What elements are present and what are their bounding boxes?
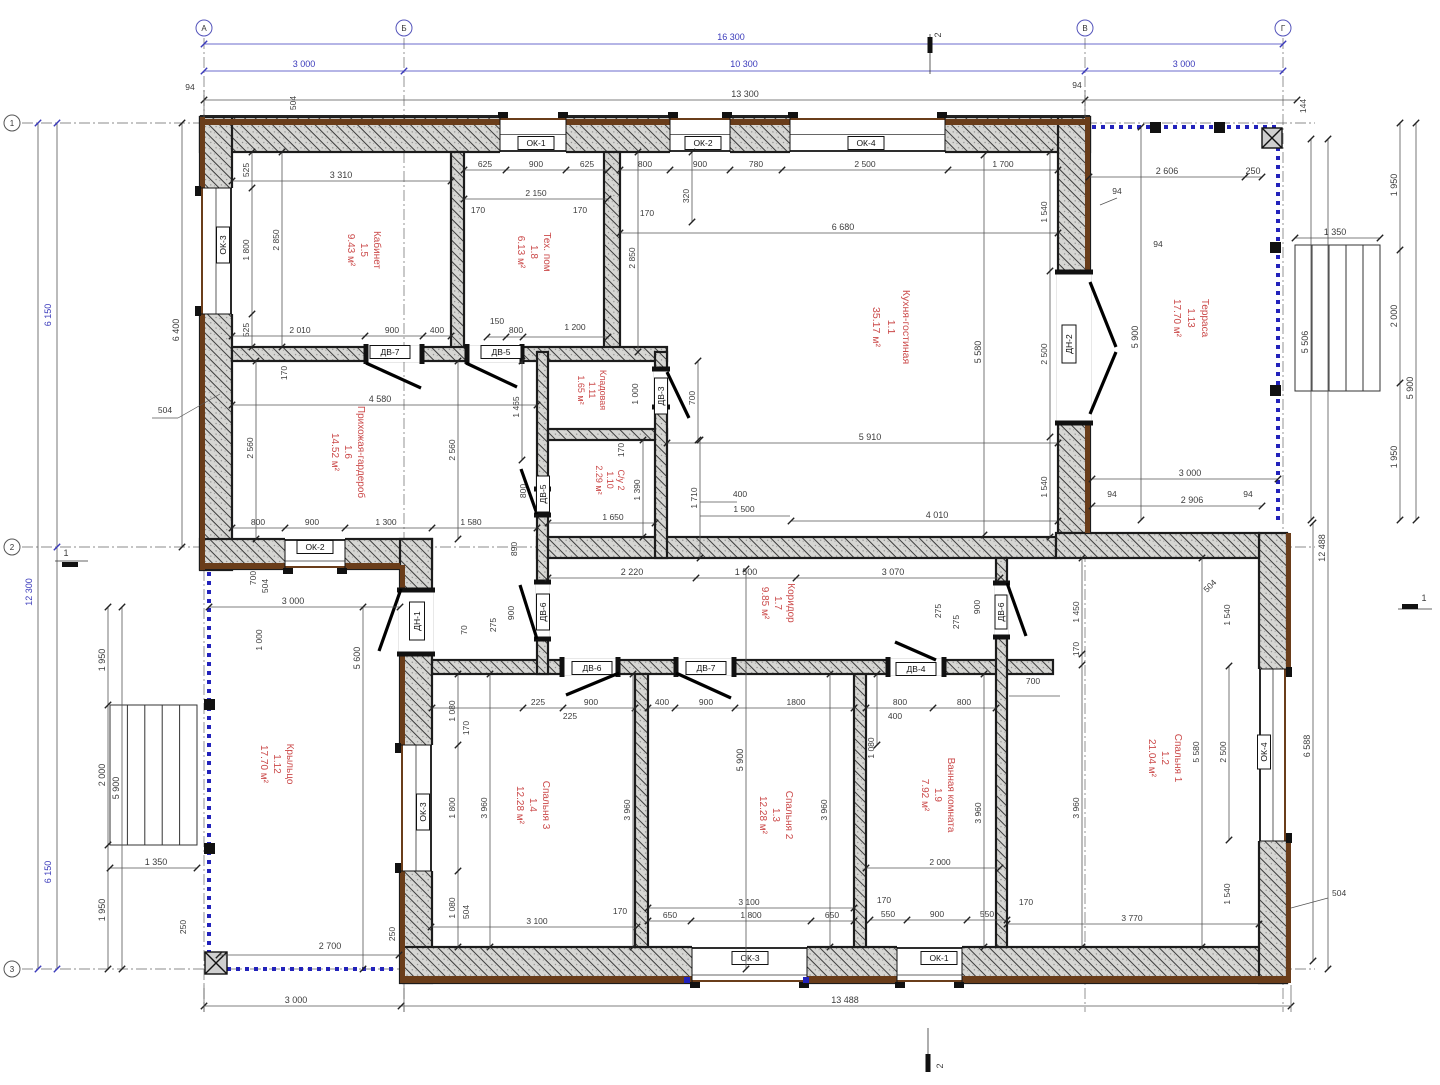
svg-text:1 950: 1 950 [97, 649, 107, 672]
svg-text:14.52 м²: 14.52 м² [329, 433, 340, 472]
svg-text:2 500: 2 500 [1039, 343, 1049, 365]
svg-text:2 000: 2 000 [1389, 305, 1399, 328]
svg-text:2: 2 [935, 1063, 945, 1068]
svg-text:3 000: 3 000 [293, 59, 316, 69]
svg-text:4 010: 4 010 [926, 510, 949, 520]
svg-text:5 900: 5 900 [111, 777, 121, 800]
svg-text:504: 504 [1332, 888, 1346, 898]
svg-text:2 850: 2 850 [627, 247, 637, 269]
svg-text:В: В [1082, 24, 1087, 33]
svg-text:700: 700 [248, 571, 258, 585]
svg-text:ОК-3: ОК-3 [218, 235, 228, 254]
svg-text:900: 900 [584, 697, 598, 707]
svg-text:3 960: 3 960 [819, 799, 829, 821]
svg-text:225: 225 [563, 711, 577, 721]
svg-text:А: А [201, 24, 207, 33]
svg-text:1 080: 1 080 [866, 737, 876, 759]
svg-text:3 770: 3 770 [1121, 913, 1143, 923]
svg-text:Тех. пом: Тех. пом [541, 232, 552, 271]
svg-text:3 000: 3 000 [285, 995, 308, 1005]
svg-text:700: 700 [1026, 676, 1040, 686]
svg-text:250: 250 [1245, 166, 1260, 176]
svg-text:1.6: 1.6 [342, 445, 353, 459]
svg-text:Коридор: Коридор [785, 583, 796, 623]
svg-text:3 960: 3 960 [622, 799, 632, 821]
svg-text:144: 144 [1298, 99, 1308, 113]
svg-text:650: 650 [663, 910, 677, 920]
svg-text:3 100: 3 100 [738, 897, 760, 907]
svg-text:400: 400 [733, 489, 747, 499]
svg-text:1: 1 [63, 548, 68, 558]
svg-text:150: 150 [490, 316, 504, 326]
svg-text:3 100: 3 100 [526, 916, 548, 926]
svg-text:6.13 м²: 6.13 м² [515, 236, 526, 269]
svg-text:2 000: 2 000 [97, 764, 107, 787]
svg-text:ОК-1: ОК-1 [526, 138, 545, 148]
svg-text:94: 94 [185, 82, 195, 92]
svg-text:5 600: 5 600 [352, 647, 362, 670]
svg-text:1 710: 1 710 [689, 487, 699, 509]
svg-text:Кабинет: Кабинет [371, 231, 383, 269]
svg-text:170: 170 [573, 205, 587, 215]
svg-text:ДВ-5: ДВ-5 [538, 484, 548, 503]
svg-text:225: 225 [531, 697, 545, 707]
svg-text:5 900: 5 900 [1405, 377, 1415, 400]
svg-text:94: 94 [1243, 489, 1253, 499]
svg-text:1 540: 1 540 [1222, 883, 1232, 905]
svg-text:ДН-1: ДН-1 [412, 611, 422, 631]
svg-text:Б: Б [401, 24, 406, 33]
svg-text:5 580: 5 580 [1191, 741, 1201, 763]
svg-text:2 560: 2 560 [447, 439, 457, 461]
svg-text:1 950: 1 950 [1389, 446, 1399, 469]
svg-text:1 540: 1 540 [1039, 201, 1049, 223]
svg-text:6 150: 6 150 [43, 861, 53, 884]
svg-text:250: 250 [387, 927, 397, 941]
svg-text:12.28 м²: 12.28 м² [514, 786, 525, 825]
svg-text:Прихожая-гардероб: Прихожая-гардероб [355, 406, 367, 499]
svg-text:94: 94 [1072, 80, 1082, 90]
svg-text:700: 700 [687, 391, 697, 405]
svg-text:900: 900 [529, 159, 543, 169]
svg-text:800: 800 [518, 484, 528, 498]
svg-text:Крыльцо: Крыльцо [284, 744, 295, 785]
svg-text:12.28 м²: 12.28 м² [757, 796, 768, 835]
svg-text:1 800: 1 800 [447, 797, 457, 819]
svg-text:170: 170 [877, 895, 891, 905]
svg-text:275: 275 [933, 604, 943, 618]
svg-text:170: 170 [1071, 642, 1081, 656]
svg-text:2 500: 2 500 [1218, 741, 1228, 763]
svg-text:1.65 м²: 1.65 м² [576, 375, 586, 404]
svg-text:Кладовая: Кладовая [598, 370, 608, 410]
svg-text:1.12: 1.12 [271, 754, 282, 774]
svg-text:2 906: 2 906 [1181, 495, 1204, 505]
svg-text:16 300: 16 300 [717, 32, 745, 42]
svg-text:5 910: 5 910 [859, 432, 882, 442]
svg-text:2.29 м²: 2.29 м² [594, 465, 604, 494]
svg-text:800: 800 [638, 159, 652, 169]
svg-text:1.2: 1.2 [1159, 751, 1170, 765]
svg-text:3 000: 3 000 [1179, 468, 1202, 478]
svg-text:3 960: 3 960 [1071, 797, 1081, 819]
svg-text:ДВ-6: ДВ-6 [996, 602, 1006, 621]
svg-text:275: 275 [951, 615, 961, 629]
svg-text:1 000: 1 000 [630, 383, 640, 405]
svg-text:1 800: 1 800 [740, 910, 762, 920]
svg-text:800: 800 [893, 697, 907, 707]
svg-text:800: 800 [251, 517, 265, 527]
svg-text:170: 170 [279, 366, 289, 380]
svg-text:Терраса: Терраса [1199, 299, 1210, 338]
svg-text:Спальня 3: Спальня 3 [540, 781, 551, 830]
svg-text:1.1: 1.1 [885, 320, 897, 335]
svg-text:1 500: 1 500 [733, 504, 755, 514]
svg-text:1 950: 1 950 [97, 899, 107, 922]
svg-text:6 150: 6 150 [43, 304, 53, 327]
svg-text:ОК-3: ОК-3 [740, 953, 759, 963]
svg-text:Спальня 1: Спальня 1 [1172, 734, 1183, 783]
svg-text:2: 2 [933, 32, 943, 37]
svg-text:1 465: 1 465 [511, 396, 521, 418]
svg-text:1 080: 1 080 [447, 700, 457, 722]
svg-text:625: 625 [478, 159, 492, 169]
svg-text:2 700: 2 700 [319, 941, 342, 951]
svg-text:2 560: 2 560 [245, 437, 255, 459]
svg-text:6 680: 6 680 [832, 222, 855, 232]
svg-text:21.04 м²: 21.04 м² [1146, 739, 1157, 778]
svg-text:ДВ-3: ДВ-3 [656, 386, 666, 405]
svg-text:3 310: 3 310 [330, 170, 353, 180]
svg-text:3 960: 3 960 [479, 797, 489, 819]
svg-text:504: 504 [288, 96, 298, 110]
svg-text:ОК-3: ОК-3 [418, 802, 428, 821]
svg-text:900: 900 [305, 517, 319, 527]
svg-text:6 588: 6 588 [1302, 735, 1312, 758]
svg-text:10 300: 10 300 [730, 59, 758, 69]
svg-text:250: 250 [178, 920, 188, 934]
svg-text:ОК-1: ОК-1 [929, 953, 948, 963]
svg-text:890: 890 [509, 542, 519, 556]
svg-text:900: 900 [972, 600, 982, 614]
svg-text:ДВ-7: ДВ-7 [697, 663, 716, 673]
svg-text:170: 170 [613, 906, 627, 916]
svg-text:2 500: 2 500 [854, 159, 876, 169]
svg-text:1 000: 1 000 [254, 629, 264, 651]
svg-text:1.4: 1.4 [527, 798, 538, 812]
svg-text:504: 504 [260, 579, 270, 593]
svg-text:550: 550 [980, 909, 994, 919]
svg-text:1 700: 1 700 [992, 159, 1014, 169]
svg-text:1 080: 1 080 [447, 897, 457, 919]
svg-text:504: 504 [461, 905, 471, 919]
svg-text:1.9: 1.9 [932, 788, 943, 802]
svg-text:1.13: 1.13 [1185, 308, 1196, 328]
svg-text:17.70 м²: 17.70 м² [1171, 299, 1182, 338]
svg-text:ДВ-7: ДВ-7 [381, 347, 400, 357]
svg-text:1 950: 1 950 [1389, 174, 1399, 197]
svg-text:1 200: 1 200 [564, 322, 586, 332]
svg-text:1.11: 1.11 [587, 382, 597, 399]
svg-text:1 300: 1 300 [375, 517, 397, 527]
svg-text:2 220: 2 220 [621, 567, 644, 577]
svg-text:800: 800 [957, 697, 971, 707]
svg-text:1.5: 1.5 [358, 243, 369, 257]
svg-text:275: 275 [488, 618, 498, 632]
svg-text:900: 900 [506, 606, 516, 620]
svg-text:Ванная комната: Ванная комната [945, 758, 956, 833]
svg-text:1: 1 [1421, 593, 1426, 603]
svg-text:400: 400 [655, 697, 669, 707]
svg-text:170: 170 [471, 205, 485, 215]
svg-text:12 488: 12 488 [1317, 534, 1327, 562]
svg-text:С/у 2: С/у 2 [616, 469, 626, 490]
svg-text:170: 170 [1019, 897, 1033, 907]
svg-text:ДВ-5: ДВ-5 [492, 347, 511, 357]
svg-text:1.8: 1.8 [528, 245, 539, 259]
svg-text:94: 94 [1107, 489, 1117, 499]
svg-text:70: 70 [459, 625, 469, 635]
svg-text:900: 900 [693, 159, 707, 169]
svg-text:900: 900 [385, 325, 399, 335]
svg-text:13 300: 13 300 [731, 89, 759, 99]
svg-text:6 400: 6 400 [171, 319, 181, 342]
svg-text:Г: Г [1281, 24, 1286, 33]
svg-text:3 000: 3 000 [1173, 59, 1196, 69]
svg-text:1 350: 1 350 [1324, 227, 1347, 237]
svg-text:35.17 м²: 35.17 м² [870, 307, 882, 347]
svg-text:170: 170 [616, 443, 626, 457]
svg-text:3 960: 3 960 [973, 802, 983, 824]
svg-text:ДВ-6: ДВ-6 [583, 663, 602, 673]
svg-text:525: 525 [241, 163, 251, 177]
svg-text:13 488: 13 488 [831, 995, 859, 1005]
svg-text:12 300: 12 300 [24, 578, 34, 606]
svg-text:780: 780 [749, 159, 763, 169]
svg-text:504: 504 [158, 405, 172, 415]
svg-text:1 540: 1 540 [1222, 604, 1232, 626]
svg-text:1 450: 1 450 [1071, 601, 1081, 623]
svg-text:320: 320 [681, 189, 691, 203]
svg-text:ОК-4: ОК-4 [1259, 742, 1269, 761]
svg-text:625: 625 [580, 159, 594, 169]
svg-text:170: 170 [461, 721, 471, 735]
svg-text:1 540: 1 540 [1039, 476, 1049, 498]
svg-text:1 580: 1 580 [460, 517, 482, 527]
svg-text:5 506: 5 506 [1300, 331, 1310, 354]
svg-text:ДВ-4: ДВ-4 [907, 664, 926, 674]
svg-text:2 606: 2 606 [1156, 166, 1179, 176]
svg-text:Кухня-гостиная: Кухня-гостиная [900, 290, 912, 364]
svg-text:800: 800 [509, 325, 523, 335]
svg-text:ДН-2: ДН-2 [1064, 334, 1074, 354]
svg-text:94: 94 [1112, 186, 1122, 196]
svg-text:1 350: 1 350 [145, 857, 168, 867]
svg-text:2 150: 2 150 [525, 188, 547, 198]
svg-text:650: 650 [825, 910, 839, 920]
svg-text:9.43 м²: 9.43 м² [345, 234, 356, 267]
svg-text:ДВ-6: ДВ-6 [538, 602, 548, 621]
svg-text:400: 400 [888, 711, 902, 721]
svg-text:5 900: 5 900 [1130, 326, 1140, 349]
svg-text:ОК-4: ОК-4 [856, 138, 875, 148]
svg-text:1 500: 1 500 [735, 567, 758, 577]
svg-text:2: 2 [10, 543, 15, 552]
svg-text:4 580: 4 580 [369, 394, 392, 404]
svg-text:9.85 м²: 9.85 м² [759, 587, 770, 620]
svg-text:1 650: 1 650 [602, 512, 624, 522]
svg-text:ОК-2: ОК-2 [305, 542, 324, 552]
svg-text:1.10: 1.10 [605, 471, 615, 489]
svg-text:Спальня 2: Спальня 2 [783, 791, 794, 840]
svg-text:3 070: 3 070 [882, 567, 905, 577]
svg-text:7.92 м²: 7.92 м² [919, 779, 930, 812]
svg-text:ОК-2: ОК-2 [693, 138, 712, 148]
svg-text:900: 900 [930, 909, 944, 919]
svg-text:2 850: 2 850 [271, 229, 281, 251]
svg-text:400: 400 [430, 325, 444, 335]
svg-text:1 390: 1 390 [632, 479, 642, 501]
svg-text:94: 94 [1153, 239, 1163, 249]
svg-text:1800: 1800 [787, 697, 806, 707]
svg-text:1: 1 [10, 119, 15, 128]
svg-text:1.7: 1.7 [772, 596, 783, 610]
svg-text:900: 900 [699, 697, 713, 707]
svg-text:1.3: 1.3 [770, 808, 781, 822]
svg-text:525: 525 [241, 323, 251, 337]
svg-text:3: 3 [10, 965, 15, 974]
svg-text:2 010: 2 010 [289, 325, 311, 335]
svg-text:1 800: 1 800 [241, 239, 251, 261]
svg-text:3 000: 3 000 [282, 596, 305, 606]
svg-text:5 580: 5 580 [973, 341, 983, 364]
svg-text:17.70 м²: 17.70 м² [258, 745, 269, 784]
svg-text:550: 550 [881, 909, 895, 919]
svg-text:2 000: 2 000 [929, 857, 951, 867]
svg-text:170: 170 [640, 208, 654, 218]
svg-text:5 900: 5 900 [735, 749, 745, 772]
